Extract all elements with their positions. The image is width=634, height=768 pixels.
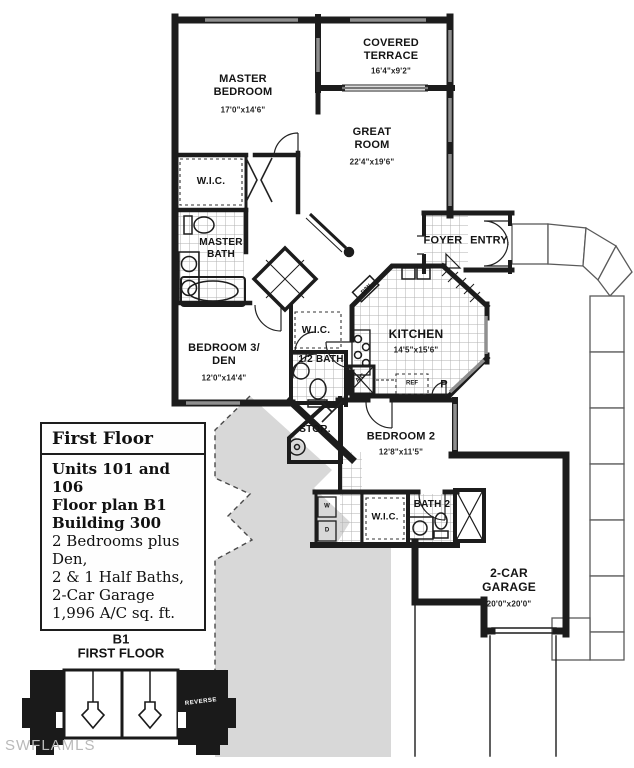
info-line-units: Units 101 and 106 bbox=[52, 460, 196, 496]
walkway-pavers bbox=[512, 224, 632, 660]
key-plan-title: B1 FIRST FLOOR bbox=[78, 632, 165, 659]
room-label-kitchen: KITCHEN bbox=[389, 327, 444, 341]
room-dims-bedroom3-den: 12'0"x14'4" bbox=[202, 374, 247, 383]
room-label-hall-wic: W.I.C. bbox=[302, 325, 330, 337]
room-dims-covered-terrace: 16'4"x9'2" bbox=[371, 67, 411, 76]
mls-watermark: SWFLAMLS bbox=[5, 737, 96, 754]
room-label-covered-terrace: COVERED TERRACE bbox=[363, 37, 419, 63]
washer-label: W bbox=[324, 503, 330, 510]
info-box-body: Units 101 and 106 Floor plan B1 Building… bbox=[42, 455, 204, 629]
room-label-bedroom3-den: BEDROOM 3/ DEN bbox=[188, 342, 260, 368]
room-label-bedroom2: BEDROOM 2 bbox=[367, 431, 435, 444]
floor-plan-page: MASTER BEDROOM 17'0"x14'6" COVERED TERRA… bbox=[0, 0, 634, 768]
info-line-baths: 2 & 1 Half Baths, bbox=[52, 568, 196, 586]
room-label-garage: 2-CAR GARAGE bbox=[482, 566, 536, 594]
driveway-area bbox=[215, 396, 391, 757]
room-dims-kitchen: 14'5"x15'6" bbox=[394, 346, 439, 355]
info-line-bedrooms: 2 Bedrooms plus Den, bbox=[52, 532, 196, 568]
pantry-label: P bbox=[440, 379, 448, 392]
dryer-label: D bbox=[325, 527, 329, 534]
room-dims-great-room: 22'4"x19'6" bbox=[350, 158, 395, 167]
info-line-garage: 2-Car Garage bbox=[52, 586, 196, 604]
room-label-entry: ENTRY bbox=[470, 235, 508, 248]
info-line-floorplan: Floor plan B1 bbox=[52, 496, 196, 514]
room-label-storage: STOR. bbox=[299, 424, 330, 436]
room-dims-bedroom2: 12'8"x11'5" bbox=[379, 448, 423, 457]
room-label-master-wic: W.I.C. bbox=[197, 176, 225, 188]
room-dims-master-bedroom: 17'0"x14'6" bbox=[221, 106, 266, 115]
plan-info-box: First Floor Units 101 and 106 Floor plan… bbox=[40, 422, 206, 631]
room-label-foyer: FOYER bbox=[424, 235, 463, 248]
info-line-sqft: 1,996 A/C sq. ft. bbox=[52, 604, 196, 622]
room-label-bedroom2-wic: W.I.C. bbox=[371, 511, 398, 522]
room-dims-garage: 20'0"x20'0" bbox=[487, 600, 532, 609]
room-label-master-bedroom: MASTER BEDROOM bbox=[214, 73, 273, 99]
refrigerator-label: REF bbox=[406, 380, 418, 387]
room-label-half-bath: 1/2 BATH bbox=[298, 354, 343, 366]
room-label-bath2: BATH 2 bbox=[414, 499, 451, 511]
room-label-great-room: GREAT ROOM bbox=[353, 126, 392, 152]
info-box-title: First Floor bbox=[42, 424, 204, 455]
room-label-master-bath: MASTER BATH bbox=[199, 237, 242, 261]
info-line-building: Building 300 bbox=[52, 514, 196, 532]
